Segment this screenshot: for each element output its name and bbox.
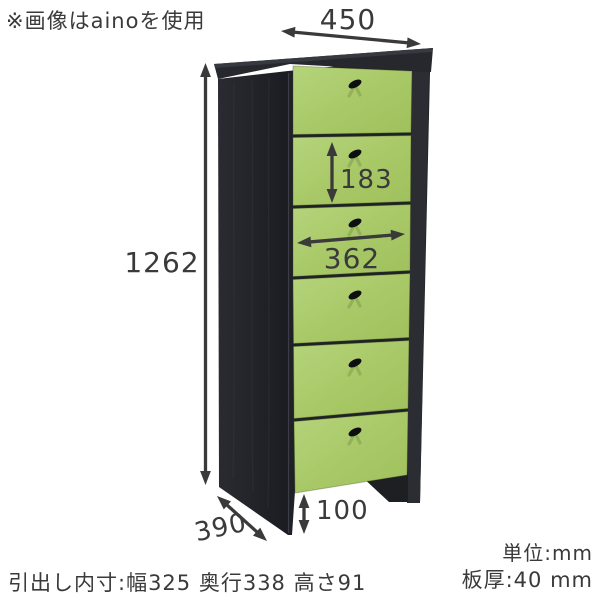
drawer-front-4 (293, 274, 410, 344)
footer-inner-dimensions-text: 引出し内寸:幅325 奥行338 高さ91 (8, 571, 366, 595)
dimension-diagram: 450 1262 183 362 100 390 ※画像はainoを使用 引出し… (0, 0, 600, 600)
width-dimension-label: 450 (320, 3, 376, 36)
drawer-fronts (293, 66, 412, 493)
footer-thickness-text: 板厚:40 mm (462, 568, 593, 592)
drawer-front-5 (294, 341, 410, 419)
drawer-height-dimension-label: 183 (340, 165, 393, 195)
drawer-front-1 (293, 66, 412, 135)
footer-unit-text: 単位:mm (502, 541, 593, 565)
height-arrow (200, 63, 211, 485)
cabinet (214, 48, 433, 535)
clearance-arrow (299, 494, 310, 534)
drawer-width-dimension-label: 362 (324, 242, 380, 275)
usage-note: ※画像はainoを使用 (6, 9, 205, 33)
height-dimension-label: 1262 (124, 246, 199, 279)
depth-dimension-label: 390 (192, 508, 250, 548)
clearance-dimension-label: 100 (316, 496, 369, 526)
